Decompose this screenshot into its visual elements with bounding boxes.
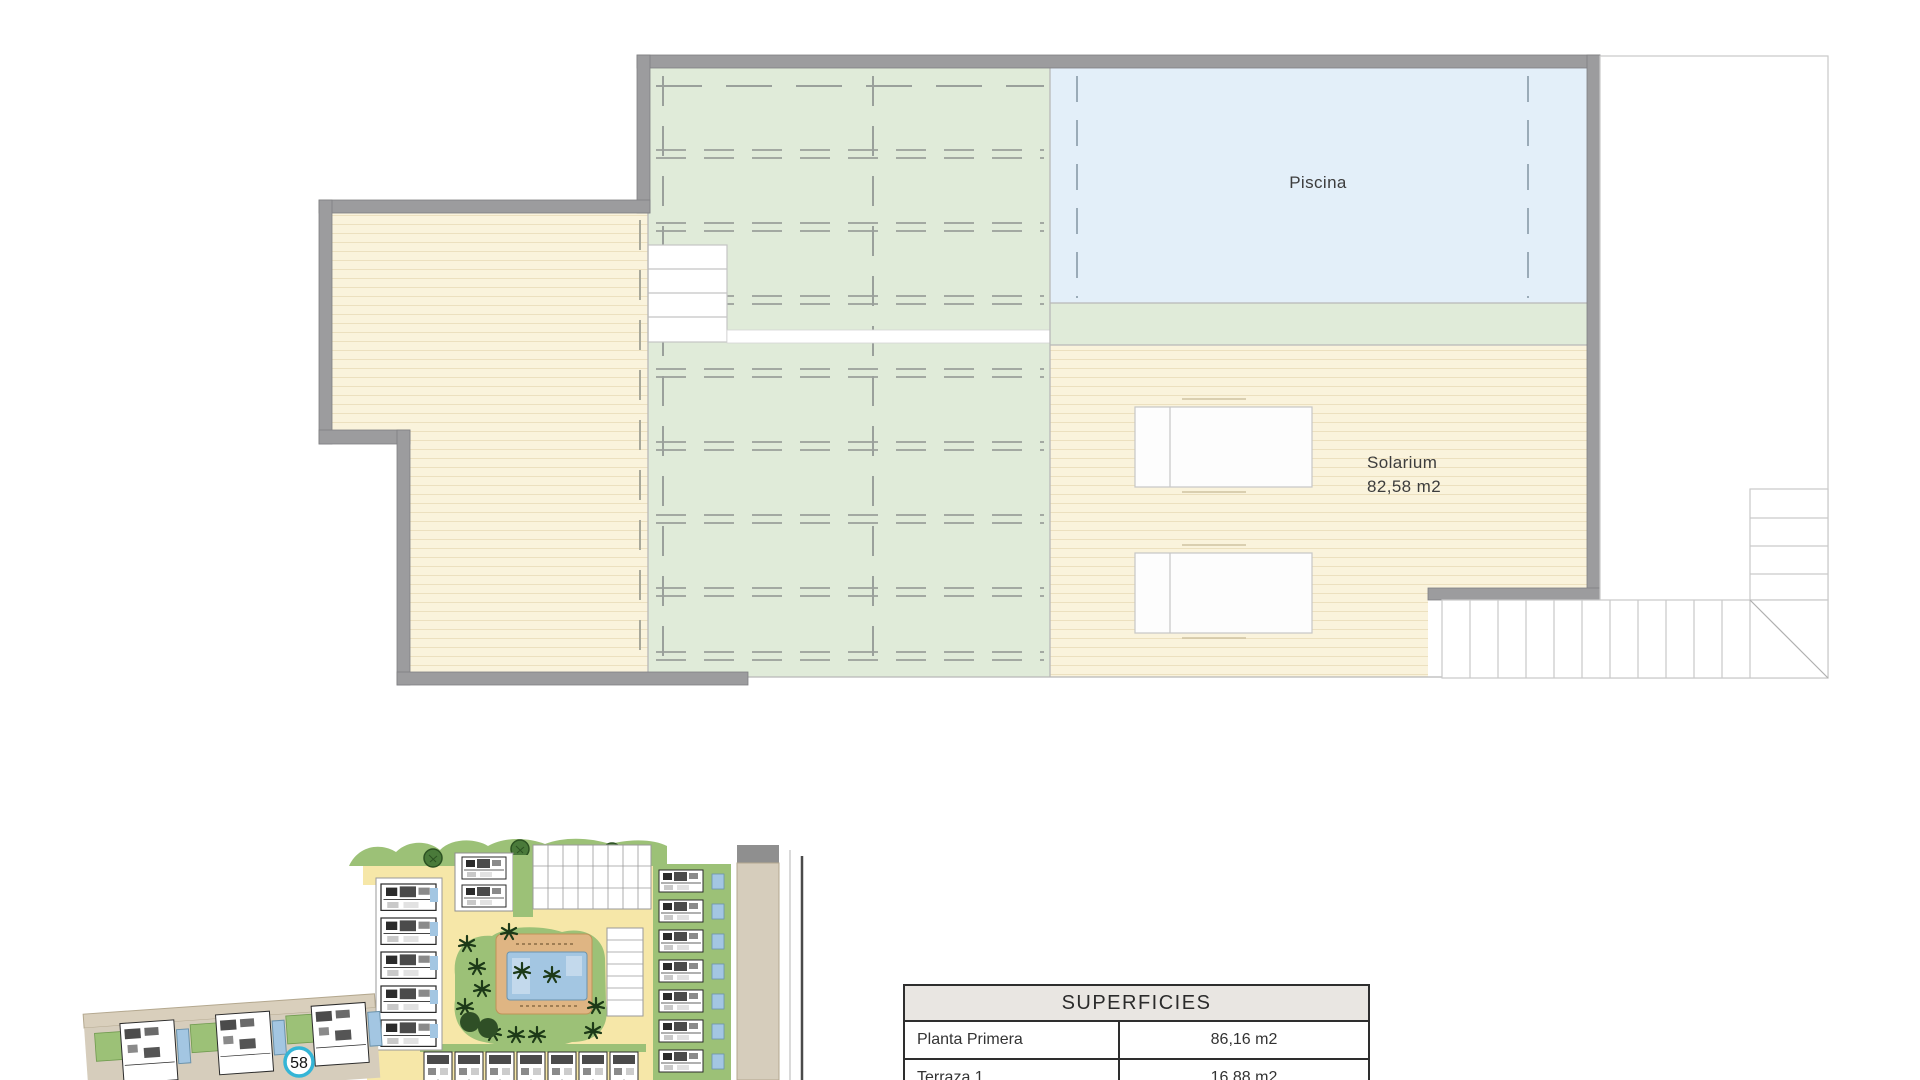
pool-label: Piscina (1289, 173, 1347, 192)
unit-number-badge: 58 (285, 1048, 313, 1076)
sun-lounger-1 (1135, 399, 1312, 492)
tree-icon (424, 849, 442, 867)
solarium-area-label: 82,58 m2 (1367, 477, 1441, 496)
superficies-table: SUPERFICIES Planta Primera 86,16 m2 Terr… (903, 984, 1370, 1080)
left-terrace-deck (332, 213, 648, 677)
row-value: 86,16 m2 (1120, 1022, 1368, 1058)
pergola-area (648, 68, 1050, 677)
site-plan: 58 (83, 839, 802, 1080)
unit-number: 58 (290, 1055, 308, 1072)
architectural-plan-sheet: Piscina Solarium 82,58 m2 (0, 0, 1920, 1080)
site-top-building (455, 853, 533, 917)
site-tilted-strip (83, 994, 384, 1080)
floor-plan: Piscina Solarium 82,58 m2 (319, 55, 1828, 685)
pool-edge-strip (1050, 303, 1587, 345)
site-right-column (653, 864, 731, 1080)
site-right-parcel (737, 845, 790, 1080)
row-value: 16,88 m2 (1120, 1060, 1368, 1080)
row-label: Planta Primera (905, 1022, 1120, 1058)
table-row-planta-primera: Planta Primera 86,16 m2 (905, 1022, 1368, 1060)
table-title: SUPERFICIES (905, 986, 1368, 1022)
site-parking-top (533, 845, 651, 909)
plan-drawing: Piscina Solarium 82,58 m2 (0, 0, 1920, 1080)
row-label: Terraza 1 (905, 1060, 1120, 1080)
sun-lounger-2 (1135, 545, 1312, 638)
table-row-terraza-1: Terraza 1 16,88 m2 (905, 1060, 1368, 1080)
site-left-column (376, 878, 442, 1050)
solarium-label: Solarium (1367, 453, 1437, 472)
site-parking-middle (607, 928, 643, 1016)
